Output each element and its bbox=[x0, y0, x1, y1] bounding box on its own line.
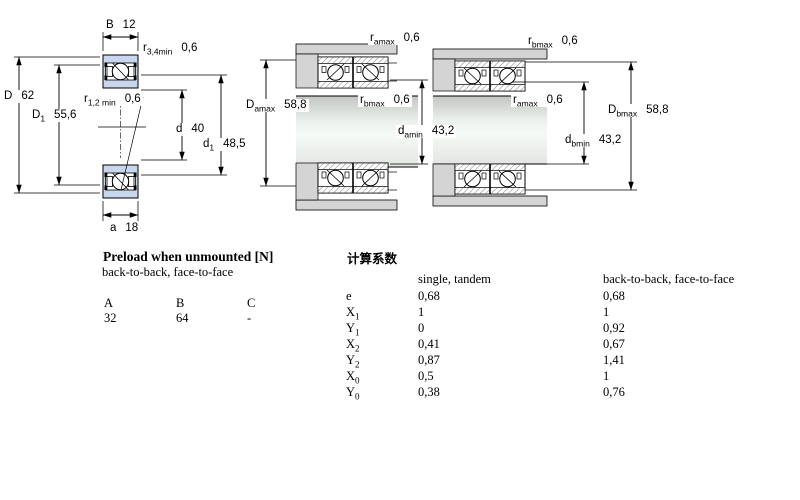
factor-row-X0: X0 0,5 1 bbox=[345, 369, 745, 385]
factor-row-Y0: Y0 0,38 0,76 bbox=[345, 385, 745, 401]
preload-col-A: A bbox=[104, 296, 113, 310]
datasheet-page: B12 r3,4min0,6 D62 D155,6 r1,2 min0,6 d4… bbox=[0, 0, 800, 500]
bearing-pair-top bbox=[318, 57, 388, 88]
calculation-factors-table: 计算系数 single, tandem back-to-back, face-t… bbox=[345, 250, 745, 410]
preload-value-A: 32 bbox=[104, 311, 117, 325]
housing-band-bottom bbox=[296, 200, 397, 210]
upper-ring-section bbox=[103, 55, 138, 88]
preload-value-B: 64 bbox=[176, 311, 189, 325]
dim-label-ramax-b: ramax0,6 bbox=[511, 94, 565, 107]
dim-label-d: d40 bbox=[174, 123, 206, 136]
dim-label-rbmax-a: rbmax0,6 bbox=[358, 94, 412, 107]
dim-label-ramax-a: ramax0,6 bbox=[368, 32, 422, 45]
dim-label-dbmin: dbmin43,2 bbox=[563, 134, 623, 147]
preload-col-B: B bbox=[176, 296, 184, 310]
factor-row-e: e 0,68 0,68 bbox=[345, 289, 745, 305]
bearing-pair-bottom bbox=[318, 163, 388, 193]
shoulder bbox=[296, 163, 318, 200]
dim-label-a: a18 bbox=[108, 222, 140, 235]
factor-row-Y1: Y1 0 0,92 bbox=[345, 321, 745, 337]
factors-table-title: 计算系数 bbox=[347, 252, 397, 266]
preload-table-subtitle: back-to-back, face-to-face bbox=[102, 265, 233, 279]
preload-table-title: Preload when unmounted [N] bbox=[103, 250, 273, 264]
preload-col-C: C bbox=[247, 296, 255, 310]
dim-label-Dbmax: Dbmax58,8 bbox=[606, 104, 671, 117]
factors-col2-header: back-to-back, face-to-face bbox=[603, 272, 734, 286]
housing-band-bottom bbox=[433, 196, 547, 206]
preload-value-C: - bbox=[247, 311, 251, 325]
dim-label-Damax: Damax58,8 bbox=[244, 99, 309, 112]
lower-ring-section bbox=[103, 165, 138, 198]
shoulder bbox=[296, 54, 318, 88]
dim-label-D: D62 bbox=[2, 90, 36, 103]
dim-label-damin: damin43,2 bbox=[396, 125, 456, 138]
factor-row-X2: X2 0,41 0,67 bbox=[345, 337, 745, 353]
factor-row-Y2: Y2 0,87 1,41 bbox=[345, 353, 745, 369]
housing-band-top bbox=[433, 49, 547, 59]
shoulder bbox=[433, 164, 455, 196]
factor-row-X1: X1 1 1 bbox=[345, 305, 745, 321]
shoulder bbox=[433, 59, 455, 91]
bearing-pair-top bbox=[455, 61, 525, 91]
dim-label-r12min: r1,2 min0,6 bbox=[82, 93, 143, 106]
dim-label-d1: d148,5 bbox=[201, 138, 248, 151]
dim-label-r34min: r3,4min0,6 bbox=[141, 42, 199, 55]
dimension-lines bbox=[584, 62, 631, 190]
mounted-pair-b-drawing bbox=[433, 49, 637, 206]
factors-col1-header: single, tandem bbox=[418, 272, 491, 286]
dim-label-rbmax-b: rbmax0,6 bbox=[526, 35, 580, 48]
preload-table: Preload when unmounted [N] back-to-back,… bbox=[103, 250, 323, 330]
dim-label-D1: D155,6 bbox=[30, 109, 78, 122]
dim-label-B: B12 bbox=[104, 19, 137, 32]
bearing-pair-bottom bbox=[455, 164, 525, 194]
